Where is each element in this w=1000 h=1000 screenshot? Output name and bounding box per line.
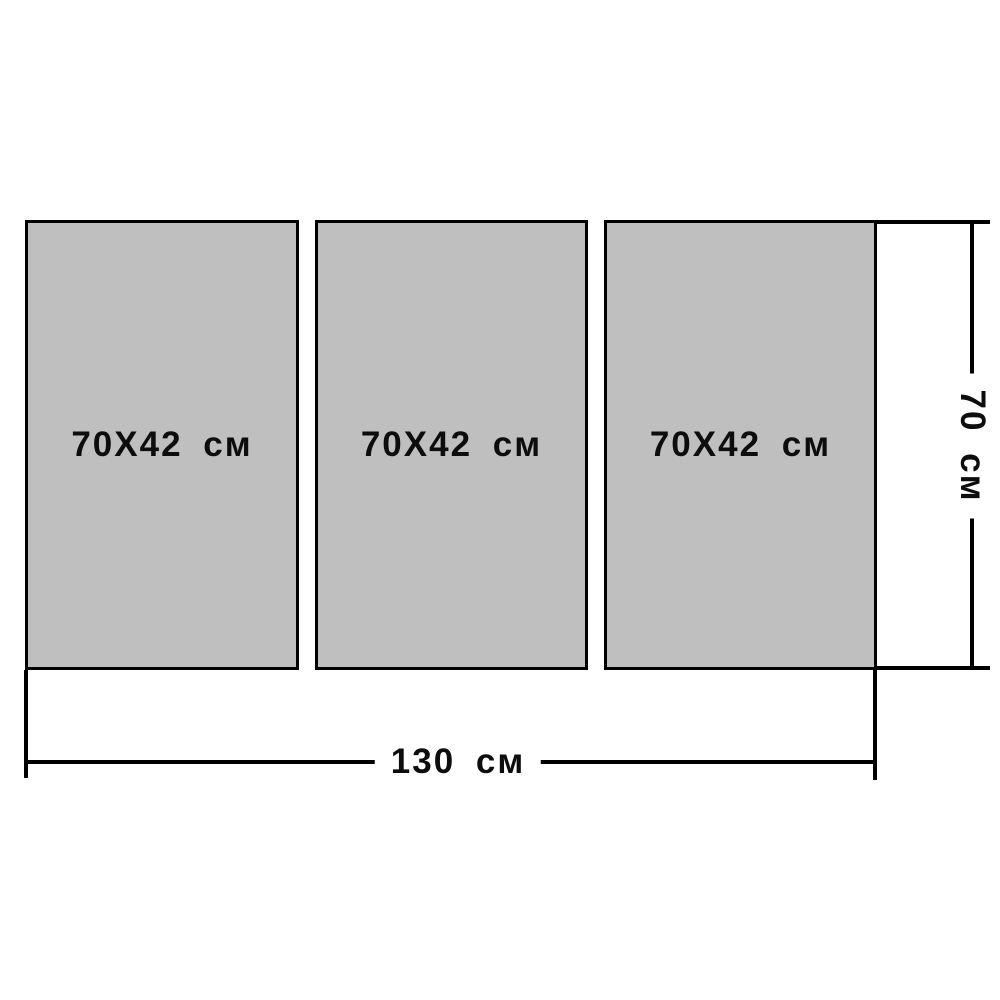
panel-right: 70X42 см bbox=[604, 220, 877, 670]
panel-center-size-label: 70X42 см bbox=[361, 425, 542, 465]
width-dimension-label: 130 см bbox=[375, 740, 541, 784]
panel-right-size-label: 70X42 см bbox=[650, 425, 831, 465]
height-dimension-label: 70 см bbox=[950, 373, 994, 518]
panel-center: 70X42 см bbox=[315, 220, 588, 670]
panel-left: 70X42 см bbox=[25, 220, 299, 670]
triptych-dimension-diagram: 70X42 см 70X42 см 70X42 см 130 см 70 см bbox=[0, 0, 1000, 1000]
panel-left-size-label: 70X42 см bbox=[71, 425, 252, 465]
